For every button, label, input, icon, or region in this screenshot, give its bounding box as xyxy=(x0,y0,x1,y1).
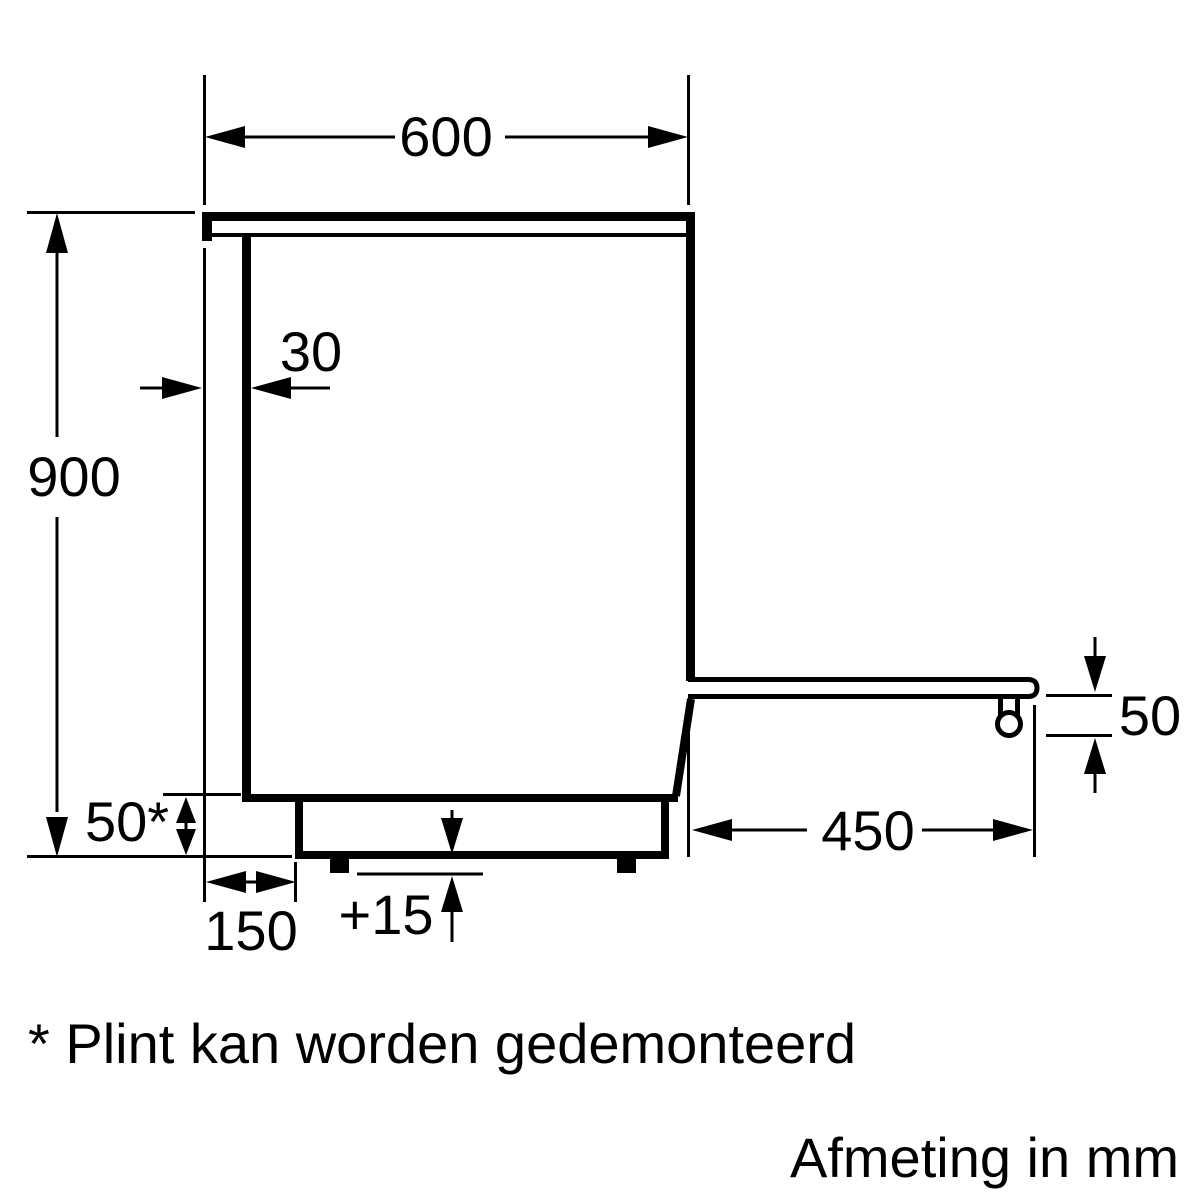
arrow-450-right xyxy=(993,819,1033,841)
dim-label-top-width: 600 xyxy=(399,109,492,165)
dim-label-plinth-height: 50* xyxy=(85,794,169,850)
dim-label-plinth-recess: 150 xyxy=(204,903,297,959)
plinth-front-face xyxy=(295,794,303,858)
ext-50-handle-bottom xyxy=(1046,734,1112,737)
arrow-150-left xyxy=(206,871,246,893)
dimline-450-left xyxy=(727,829,807,832)
ext-450-right xyxy=(1033,705,1036,857)
worktop-underside-line xyxy=(212,233,688,237)
arrow-900-bottom xyxy=(46,817,68,857)
door-handle-knob xyxy=(998,713,1021,736)
arrow-900-top xyxy=(46,213,68,253)
dim-label-height-adjust: +15 xyxy=(339,887,434,943)
dimline-150 xyxy=(244,881,258,884)
arrow-600-left xyxy=(205,126,245,148)
arrow-150-right xyxy=(256,871,296,893)
dim-label-worktop-overhang: 30 xyxy=(280,324,342,380)
dimline-30-right xyxy=(286,387,330,390)
ext-50-handle-top xyxy=(1046,694,1112,697)
units-note: Afmeting in mm xyxy=(790,1126,1179,1190)
open-door-flap xyxy=(688,680,1037,697)
ext-450-left xyxy=(687,710,690,857)
dimline-600-left xyxy=(240,136,395,139)
ext-600-right xyxy=(687,75,690,205)
dimline-900-bottom xyxy=(56,517,59,812)
cabinet-right-wall xyxy=(686,212,695,681)
dimline-50handle-lower xyxy=(1094,768,1097,793)
dimline-plus15-lower xyxy=(451,906,454,942)
plinth-rear-face xyxy=(661,797,669,858)
foot-left xyxy=(330,858,349,873)
cabinet-left-wall xyxy=(242,233,251,801)
ext-600-left xyxy=(203,75,206,205)
dimension-diagram: 600 900 30 50* 150 +15 450 50 * Plint ka… xyxy=(0,0,1200,1200)
arrow-600-right xyxy=(648,126,688,148)
arrow-30-left xyxy=(162,377,202,399)
plinth-bottom-line xyxy=(295,851,669,859)
ref-line-plus15 xyxy=(357,873,483,876)
cabinet-bottom-line xyxy=(242,794,678,802)
dimline-450-right xyxy=(922,829,1002,832)
dimline-600-right xyxy=(505,136,653,139)
worktop-left-edge xyxy=(202,212,212,241)
floor-line xyxy=(27,855,292,858)
ext-900-top xyxy=(27,211,195,214)
dim-label-handle-clearance: 50 xyxy=(1119,688,1181,744)
dimline-900-top xyxy=(56,248,59,437)
dim-label-overall-height: 900 xyxy=(27,449,120,505)
arrow-plus15-down xyxy=(441,818,463,854)
arrow-450-left xyxy=(692,819,732,841)
foot-right xyxy=(617,858,636,873)
ext-left-plane xyxy=(203,248,206,902)
arrow-50handle-down xyxy=(1084,656,1106,692)
worktop-top xyxy=(202,212,695,221)
ext-plinth-top xyxy=(163,793,241,796)
arrow-50plinth-bottom xyxy=(176,829,196,855)
dim-label-open-door-depth: 450 xyxy=(821,803,914,859)
footnote-plinth: * Plint kan worden gedemonteerd xyxy=(28,1012,856,1076)
